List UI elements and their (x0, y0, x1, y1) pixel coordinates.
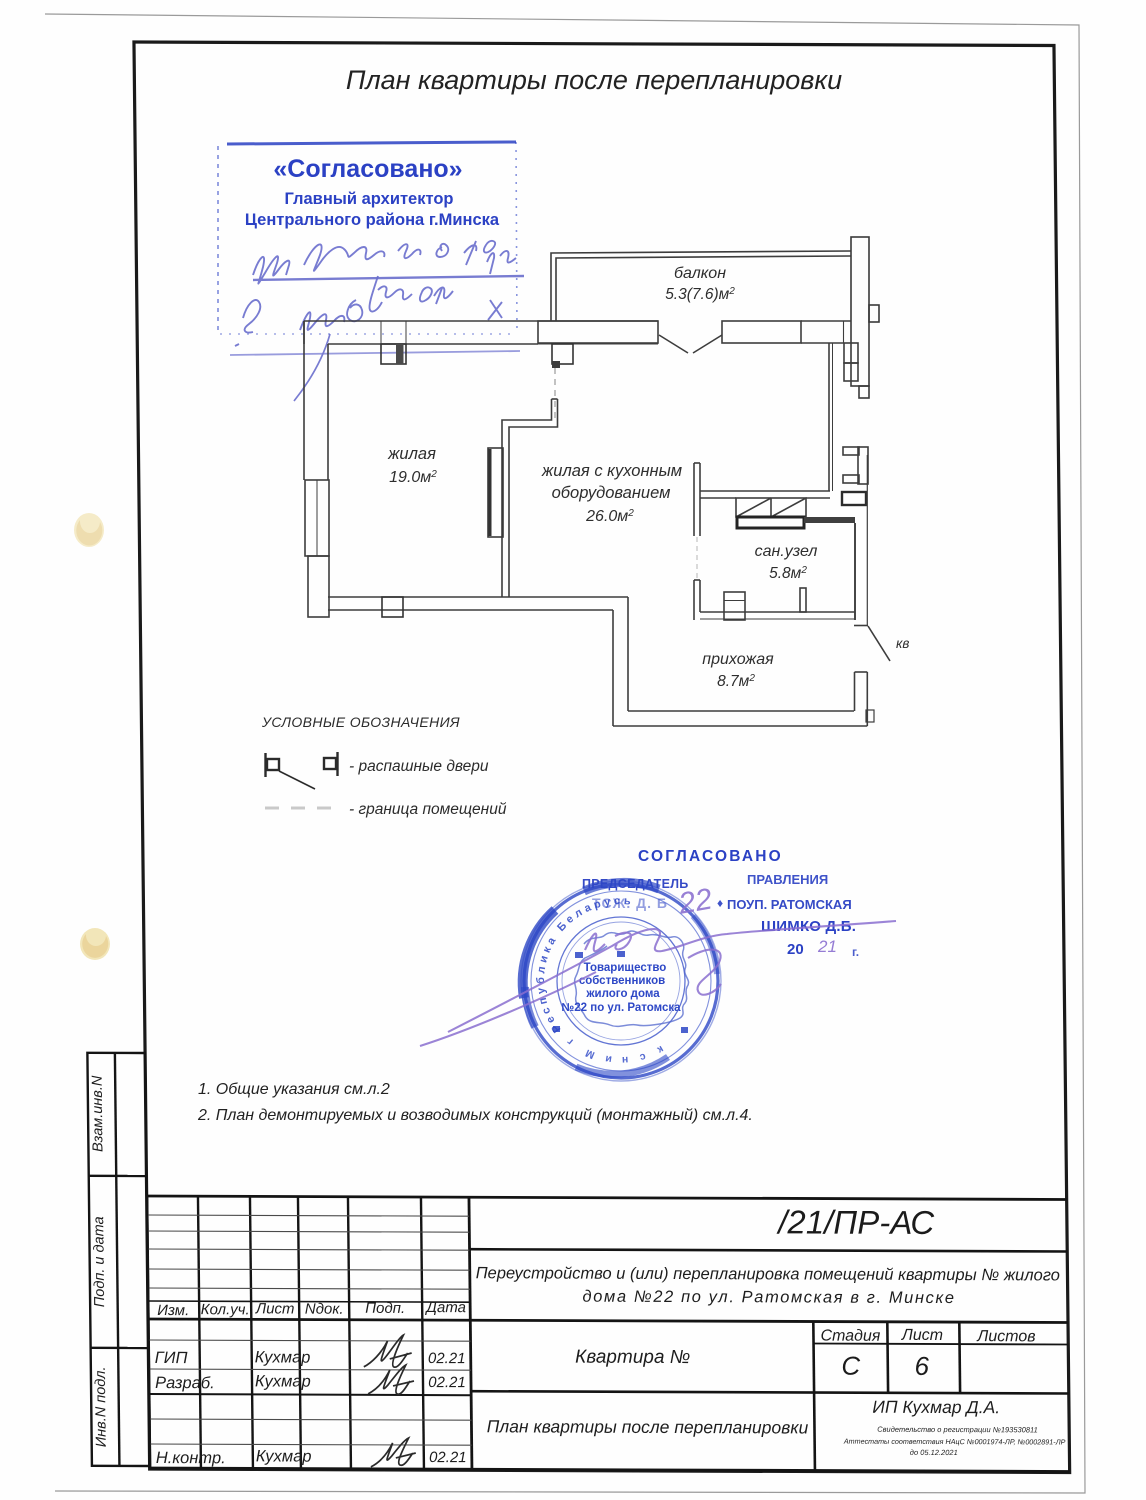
svg-text:21: 21 (817, 937, 837, 956)
svg-text:Кухмар: Кухмар (255, 1372, 311, 1390)
svg-text:жилого дома: жилого дома (585, 988, 660, 1000)
svg-text:и: и (604, 1053, 612, 1066)
svg-text:г: г (564, 1035, 576, 1047)
svg-text:Подп. и дата: Подп. и дата (91, 1216, 108, 1307)
svg-text:План квартиры после перепланир: План квартиры после перепланировки (487, 1416, 809, 1437)
svg-text:- распашные двери: - распашные двери (349, 758, 489, 775)
svg-text:дома №22 по ул. Ратомская в г.: дома №22 по ул. Ратомская в г. Минске (582, 1288, 955, 1307)
svg-text:8.7м2: 8.7м2 (717, 673, 755, 690)
svg-text:Кухмар: Кухмар (255, 1348, 311, 1366)
svg-text:02.21: 02.21 (428, 1374, 466, 1391)
svg-text:кв: кв (896, 636, 909, 651)
svg-text:ПОУП. РАТОМСКАЯ: ПОУП. РАТОМСКАЯ (727, 897, 852, 912)
svg-text:Главный архитектор: Главный архитектор (284, 190, 453, 208)
svg-text:Н.контр.: Н.контр. (156, 1449, 226, 1467)
svg-text:Переустройство и (или) перепла: Переустройство и (или) перепланировка по… (476, 1264, 1060, 1284)
svg-text:М: М (584, 1046, 597, 1061)
svg-text:5.8м2: 5.8м2 (769, 565, 807, 582)
svg-text:26.0м2: 26.0м2 (585, 508, 634, 525)
svg-text:02.21: 02.21 (429, 1449, 467, 1466)
svg-text:Дата: Дата (424, 1299, 466, 1316)
svg-text:20: 20 (787, 941, 804, 958)
svg-text:СОГЛАСОВАНО: СОГЛАСОВАНО (638, 848, 783, 865)
svg-text:с: с (638, 1050, 647, 1063)
svg-text:Лист: Лист (901, 1327, 943, 1344)
svg-text:УСЛОВНЫЕ ОБОЗНАЧЕНИЯ: УСЛОВНЫЕ ОБОЗНАЧЕНИЯ (261, 714, 460, 730)
svg-text:к: к (655, 1043, 666, 1056)
svg-text:1. Общие указания см.л.2: 1. Общие указания см.л.2 (198, 1081, 390, 1098)
svg-text:ПРАВЛЕНИЯ: ПРАВЛЕНИЯ (747, 872, 828, 887)
svg-text:6: 6 (914, 1351, 929, 1381)
svg-text:Разраб.: Разраб. (155, 1374, 215, 1392)
svg-text:ИП Кухмар Д.А.: ИП Кухмар Д.А. (872, 1397, 1000, 1417)
svg-text:Лист: Лист (255, 1300, 295, 1317)
svg-text:«Согласовано»: «Согласовано» (273, 155, 462, 183)
svg-text:Квартира №: Квартира № (575, 1347, 690, 1368)
svg-text:Взам.инв.N: Взам.инв.N (90, 1075, 107, 1152)
svg-text:Инв.N подл.: Инв.N подл. (93, 1366, 110, 1447)
svg-text:Листов: Листов (976, 1328, 1035, 1345)
svg-text:н: н (622, 1054, 629, 1066)
svg-text:№22 по ул. Ратомска: №22 по ул. Ратомска (561, 1002, 681, 1014)
svg-text:г.: г. (852, 945, 859, 959)
svg-text:Аттестаты соответствия НАцС №: Аттестаты соответствия НАцС №0001974-ЛР,… (843, 1437, 1066, 1447)
svg-text:5.3(7.6)м2: 5.3(7.6)м2 (665, 286, 735, 303)
svg-text:Nдок.: Nдок. (305, 1301, 344, 1318)
svg-text:Стадия: Стадия (820, 1328, 881, 1345)
svg-text:- граница помещений: - граница помещений (349, 801, 507, 818)
svg-text:жилая с кухонным: жилая с кухонным (541, 462, 682, 480)
svg-text:жилая: жилая (387, 445, 436, 463)
svg-text:сан.узел: сан.узел (755, 543, 818, 560)
svg-text:02.21: 02.21 (428, 1350, 466, 1367)
svg-text:балкон: балкон (674, 265, 726, 282)
svg-text:до 05.12.2021: до 05.12.2021 (910, 1448, 958, 1457)
svg-text:Подп.: Подп. (365, 1300, 405, 1317)
svg-text:прихожая: прихожая (702, 651, 774, 668)
svg-text:Центрального района г.Минска: Центрального района г.Минска (245, 211, 500, 229)
svg-text:Свидетельство о регистрации №: Свидетельство о регистрации №193530811 (877, 1425, 1038, 1435)
svg-text:оборудованием: оборудованием (552, 484, 671, 502)
svg-text:План квартиры после перепланир: План квартиры после перепланировки (346, 65, 842, 95)
svg-text:/21/ПР-АС: /21/ПР-АС (776, 1203, 936, 1241)
svg-text:19.0м2: 19.0м2 (389, 469, 437, 486)
svg-text:С: С (841, 1351, 860, 1381)
svg-text:22: 22 (675, 882, 715, 921)
svg-text:2. План демонтируемых и возво: 2. План демонтируемых и возводимых конст… (197, 1107, 753, 1124)
svg-text:Изм.: Изм. (157, 1302, 189, 1319)
svg-text:♦: ♦ (717, 896, 723, 910)
svg-text:Кол.уч.: Кол.уч. (201, 1301, 250, 1318)
svg-text:ГИП: ГИП (155, 1349, 188, 1367)
svg-text:Кухмар: Кухмар (256, 1447, 312, 1465)
svg-text:собственников: собственников (579, 975, 665, 987)
